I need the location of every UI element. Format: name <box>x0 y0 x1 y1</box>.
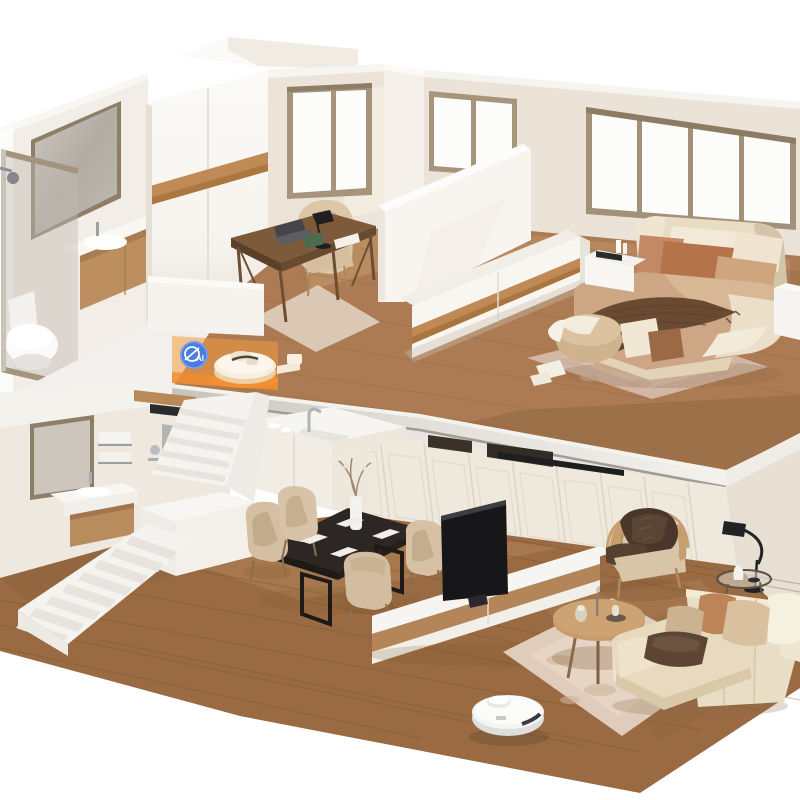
svg-text:AI: AI <box>196 354 204 363</box>
